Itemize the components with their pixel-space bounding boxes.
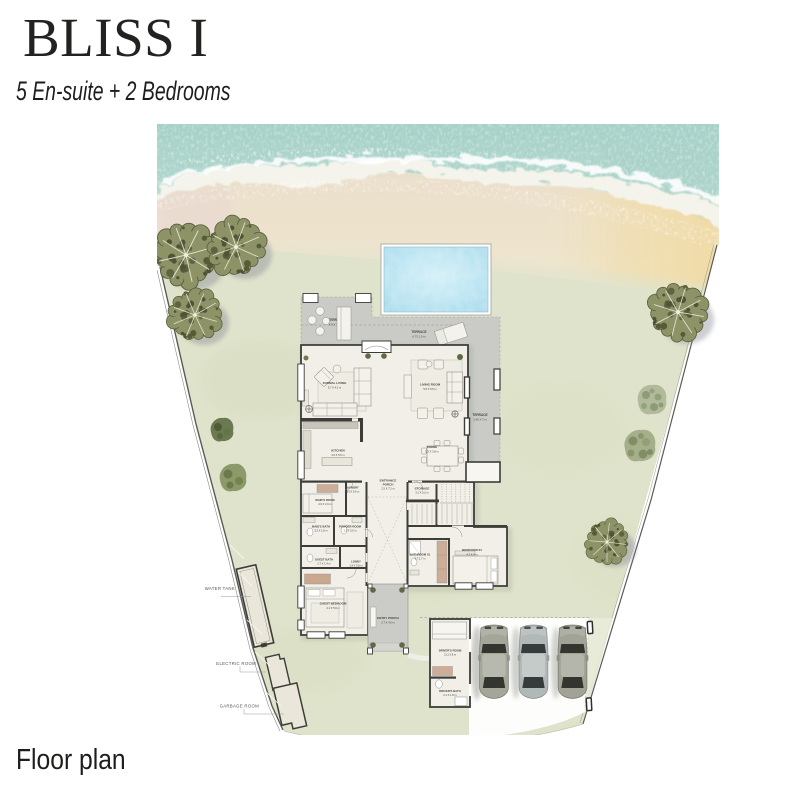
svg-text:2.1 X 1.8 m: 2.1 X 1.8 m [443,693,456,697]
svg-text:4.1 X 5.9 m: 4.1 X 5.9 m [326,606,339,610]
svg-text:1.7 X 3.0 m: 1.7 X 3.0 m [343,529,356,533]
svg-text:WATER TANK: WATER TANK [205,586,235,591]
svg-text:2.7 X 1.4 m: 2.7 X 1.4 m [317,562,330,566]
svg-text:DRIVER'S ROOM: DRIVER'S ROOM [439,649,462,653]
svg-text:BATHROOM 01: BATHROOM 01 [410,553,431,557]
svg-text:2.11 3.9 m: 2.11 3.9 m [444,653,456,657]
svg-text:ENTRY PORCH: ENTRY PORCH [377,616,399,620]
svg-text:KITCHEN: KITCHEN [331,449,344,453]
svg-text:1.9 X 5.8 m: 1.9 X 5.8 m [349,564,362,568]
svg-text:MAID'S ROOM: MAID'S ROOM [315,498,335,502]
svg-text:GARBAGE ROOM: GARBAGE ROOM [220,704,260,709]
svg-text:4.7 X 4 m: 4.7 X 4 m [466,553,477,557]
svg-text:DRIVER'S BATH: DRIVER'S BATH [439,689,460,693]
svg-text:5.2 X 3.8 m: 5.2 X 3.8 m [425,450,438,454]
svg-text:3.2 X 1.8 m: 3.2 X 1.8 m [314,529,327,533]
svg-text:STORAGE: STORAGE [415,487,430,491]
svg-text:6.73 1.0 m: 6.73 1.0 m [412,335,426,339]
svg-text:4.9 X 2.9 m: 4.9 X 2.9 m [318,502,331,506]
svg-text:3.7 1.7 m: 3.7 1.7 m [415,557,426,561]
svg-text:BEDROOM 01: BEDROOM 01 [462,548,482,552]
svg-text:FORMAL LIVING: FORMAL LIVING [323,381,347,385]
svg-text:PORCH: PORCH [383,483,394,487]
svg-text:1.93 X 5.6 m: 1.93 X 5.6 m [345,490,360,494]
svg-text:LOBBY: LOBBY [351,560,361,564]
svg-text:1.66 X 7 m: 1.66 X 7 m [473,418,487,422]
svg-text:DINING: DINING [427,445,438,449]
svg-text:LAUNDRY: LAUNDRY [345,486,359,490]
svg-text:TERRACE: TERRACE [472,413,487,417]
svg-text:GUEST BEDROOM: GUEST BEDROOM [320,602,347,606]
svg-text:TERRACE: TERRACE [411,330,426,334]
svg-text:5.7 X 4.2 m: 5.7 X 4.2 m [328,386,341,390]
svg-text:4.0 X 5.5 m: 4.0 X 5.5 m [331,453,344,457]
svg-text:3.1 X 5.2 m: 3.1 X 5.2 m [415,491,428,495]
svg-text:2.5 X 7.2 m: 2.5 X 7.2 m [381,487,394,491]
svg-text:ELECTRIC ROOM: ELECTRIC ROOM [216,661,256,666]
svg-text:POWDER ROOM: POWDER ROOM [339,525,362,529]
svg-text:GUEST BATH: GUEST BATH [315,558,333,562]
svg-text:5.5 X 5.5 m: 5.5 X 5.5 m [423,387,436,391]
svg-text:MAID'S BATH: MAID'S BATH [312,525,330,529]
svg-text:2.7 X 4.6 m: 2.7 X 4.6 m [381,621,394,625]
svg-text:LIVING ROOM: LIVING ROOM [420,383,441,387]
